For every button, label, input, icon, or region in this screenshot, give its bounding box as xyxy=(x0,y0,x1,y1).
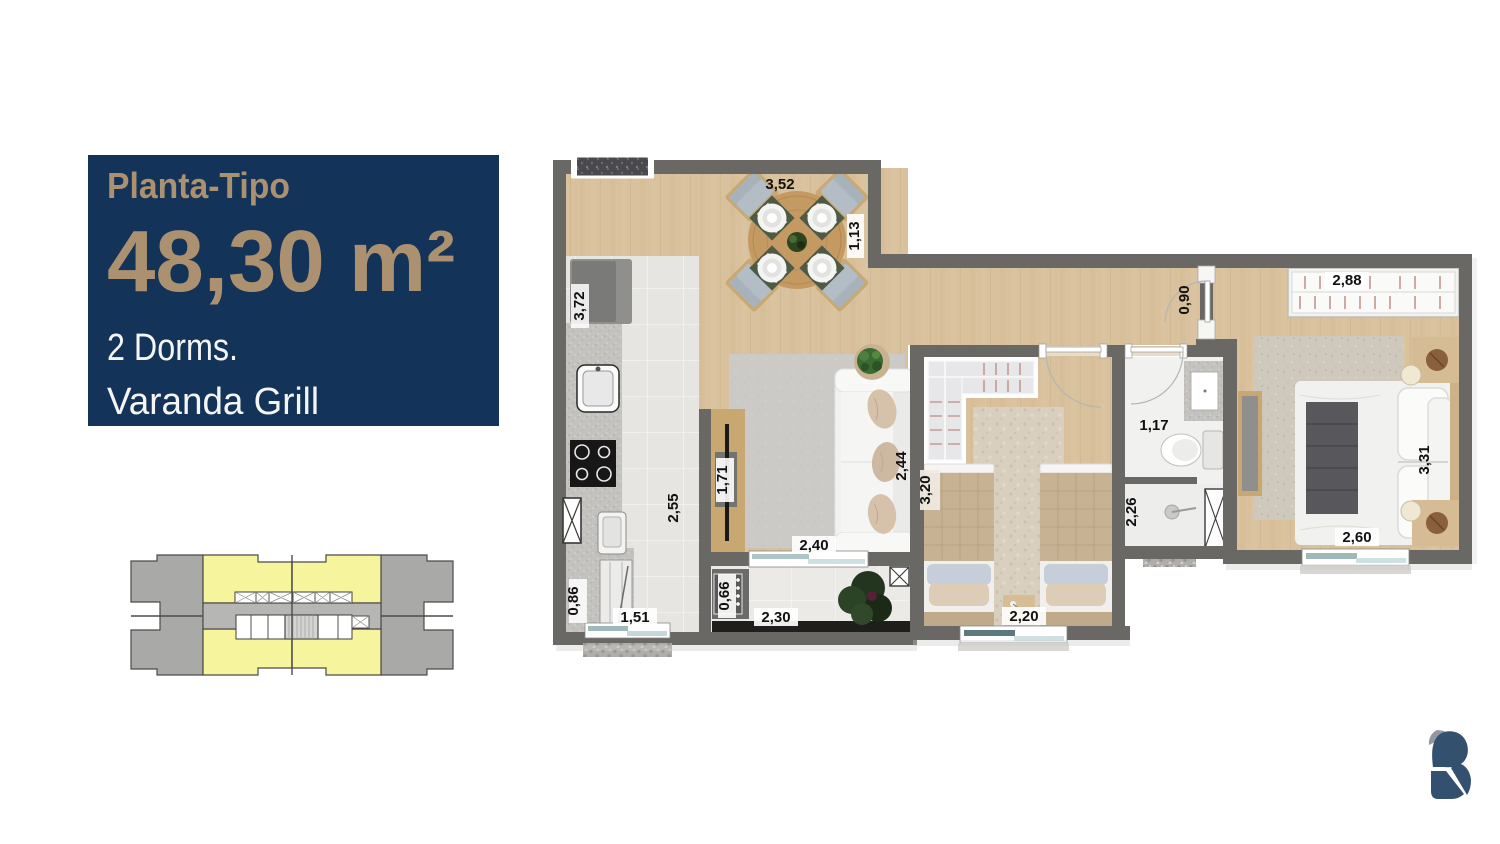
svg-text:2,60: 2,60 xyxy=(1342,529,1371,546)
svg-text:0,90: 0,90 xyxy=(1176,285,1193,314)
svg-text:3,31: 3,31 xyxy=(1416,445,1433,474)
svg-text:2 Dorms.: 2 Dorms. xyxy=(107,327,238,369)
svg-text:2,26: 2,26 xyxy=(1123,497,1140,526)
svg-text:3,20: 3,20 xyxy=(917,475,934,504)
svg-text:2,44: 2,44 xyxy=(893,451,910,481)
svg-text:2,88: 2,88 xyxy=(1332,272,1361,289)
svg-text:0,66: 0,66 xyxy=(716,581,733,610)
svg-text:2,30: 2,30 xyxy=(761,609,790,626)
svg-text:3,72: 3,72 xyxy=(571,291,588,320)
svg-text:0,86: 0,86 xyxy=(565,586,582,615)
svg-text:48,30 m²: 48,30 m² xyxy=(107,213,455,310)
svg-text:Varanda Grill: Varanda Grill xyxy=(107,381,319,423)
svg-text:1,13: 1,13 xyxy=(846,221,863,250)
svg-text:2,55: 2,55 xyxy=(665,493,682,522)
svg-text:3,52: 3,52 xyxy=(765,176,794,193)
svg-text:1,71: 1,71 xyxy=(714,465,731,494)
svg-text:Planta-Tipo: Planta-Tipo xyxy=(107,165,290,206)
svg-text:1,17: 1,17 xyxy=(1139,417,1168,434)
svg-text:2,40: 2,40 xyxy=(799,537,828,554)
svg-text:2,20: 2,20 xyxy=(1009,608,1038,625)
svg-text:1,51: 1,51 xyxy=(620,609,649,626)
